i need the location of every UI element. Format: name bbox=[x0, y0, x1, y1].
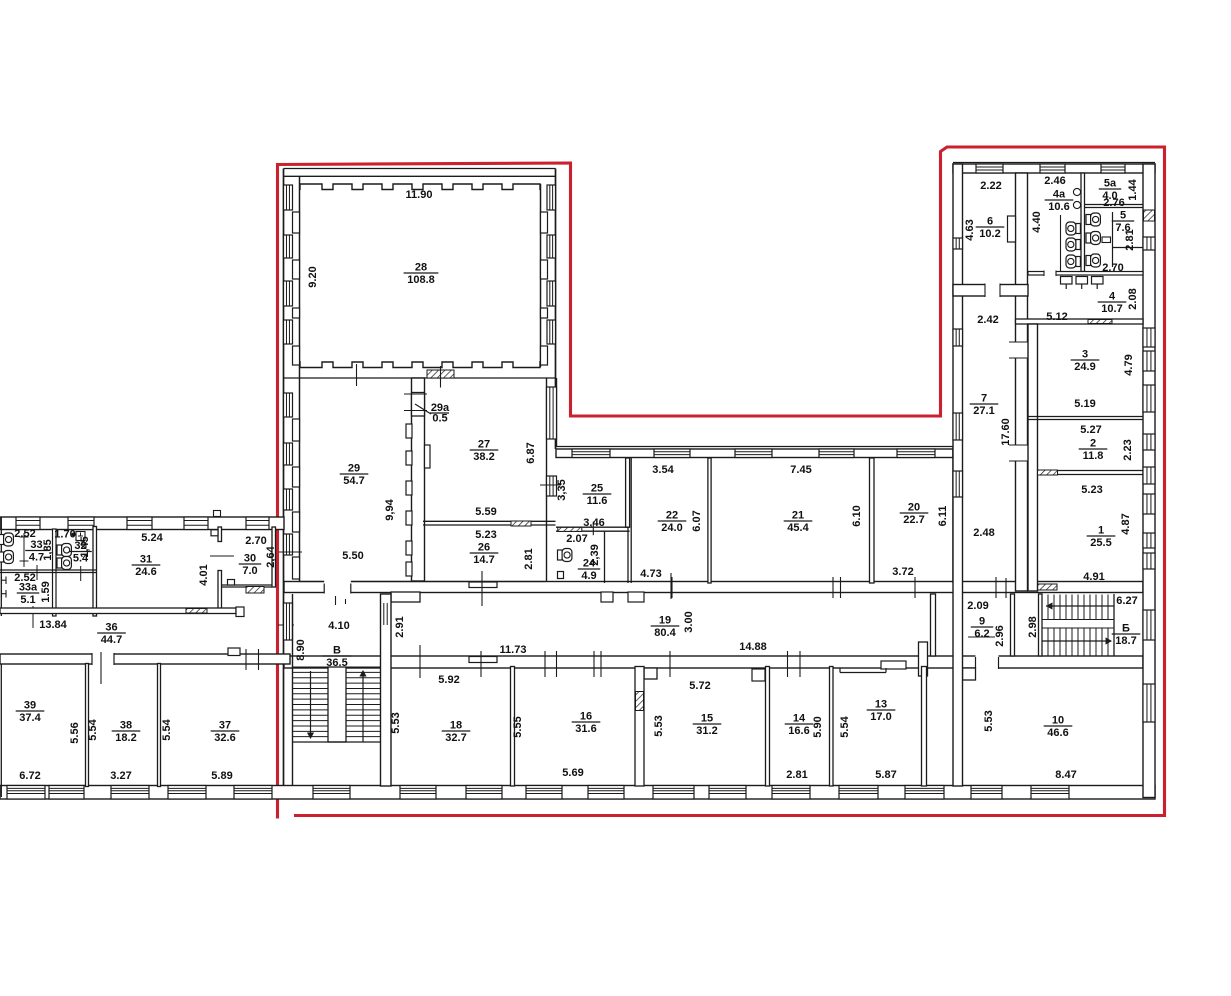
svg-text:3.27: 3.27 bbox=[110, 770, 131, 782]
svg-text:5.27: 5.27 bbox=[1080, 424, 1101, 436]
svg-text:5.72: 5.72 bbox=[689, 680, 710, 692]
svg-text:5.23: 5.23 bbox=[1081, 484, 1102, 496]
svg-text:4.40: 4.40 bbox=[1031, 211, 1043, 232]
svg-text:1,85: 1,85 bbox=[42, 539, 54, 560]
svg-text:6.72: 6.72 bbox=[19, 770, 40, 782]
svg-text:5.56: 5.56 bbox=[69, 722, 81, 743]
svg-text:2.76: 2.76 bbox=[1103, 197, 1124, 209]
svg-text:26: 26 bbox=[478, 542, 490, 554]
svg-text:2.07: 2.07 bbox=[566, 533, 587, 545]
svg-text:5.19: 5.19 bbox=[1074, 398, 1095, 410]
svg-text:10.6: 10.6 bbox=[1048, 201, 1069, 213]
svg-text:6.2: 6.2 bbox=[974, 628, 989, 640]
svg-text:6.87: 6.87 bbox=[525, 442, 537, 463]
svg-text:4.79: 4.79 bbox=[1123, 354, 1135, 375]
svg-text:2.70: 2.70 bbox=[1102, 262, 1123, 274]
svg-text:5.92: 5.92 bbox=[438, 674, 459, 686]
svg-text:13: 13 bbox=[875, 699, 887, 711]
svg-text:7.45: 7.45 bbox=[790, 464, 811, 476]
svg-text:6.07: 6.07 bbox=[691, 510, 703, 531]
svg-text:39: 39 bbox=[24, 700, 36, 712]
svg-text:14.7: 14.7 bbox=[473, 554, 494, 566]
svg-text:21: 21 bbox=[792, 510, 804, 522]
svg-text:0.5: 0.5 bbox=[432, 413, 447, 425]
svg-text:8.47: 8.47 bbox=[1055, 769, 1076, 781]
svg-text:10: 10 bbox=[1052, 715, 1064, 727]
svg-text:1.44: 1.44 bbox=[1127, 178, 1139, 200]
svg-text:5.90: 5.90 bbox=[812, 716, 824, 737]
svg-text:2: 2 bbox=[1090, 438, 1096, 450]
svg-text:4.91: 4.91 bbox=[1083, 571, 1104, 583]
svg-text:5.69: 5.69 bbox=[562, 767, 583, 779]
svg-text:2.09: 2.09 bbox=[967, 600, 988, 612]
svg-text:16.6: 16.6 bbox=[788, 725, 809, 737]
svg-text:2,64: 2,64 bbox=[265, 545, 277, 567]
svg-text:5.54: 5.54 bbox=[87, 718, 99, 740]
svg-text:31.6: 31.6 bbox=[575, 723, 596, 735]
svg-text:28: 28 bbox=[415, 262, 427, 274]
svg-text:5: 5 bbox=[1120, 210, 1126, 222]
svg-text:24.9: 24.9 bbox=[1074, 361, 1095, 373]
svg-text:31.2: 31.2 bbox=[696, 725, 717, 737]
svg-text:5.54: 5.54 bbox=[839, 715, 851, 737]
svg-text:108.8: 108.8 bbox=[407, 274, 435, 286]
svg-text:11.8: 11.8 bbox=[1083, 450, 1104, 462]
svg-text:3.72: 3.72 bbox=[892, 566, 913, 578]
svg-text:36: 36 bbox=[105, 622, 117, 634]
svg-text:5.50: 5.50 bbox=[342, 550, 363, 562]
svg-text:80.4: 80.4 bbox=[654, 627, 676, 639]
svg-text:11.73: 11.73 bbox=[500, 644, 527, 656]
svg-text:1.59: 1.59 bbox=[40, 581, 52, 602]
svg-text:2.70: 2.70 bbox=[245, 535, 266, 547]
svg-text:5.89: 5.89 bbox=[211, 770, 232, 782]
svg-text:16: 16 bbox=[580, 711, 592, 723]
svg-text:7: 7 bbox=[981, 393, 987, 405]
svg-text:45.4: 45.4 bbox=[787, 522, 809, 534]
svg-text:2.23: 2.23 bbox=[1122, 439, 1134, 460]
svg-text:6: 6 bbox=[987, 216, 993, 228]
svg-text:11.90: 11.90 bbox=[406, 189, 433, 201]
svg-text:3: 3 bbox=[1082, 349, 1088, 361]
svg-text:2.42: 2.42 bbox=[977, 314, 998, 326]
svg-text:11.6: 11.6 bbox=[587, 495, 608, 507]
svg-text:31: 31 bbox=[140, 554, 152, 566]
svg-text:3.54: 3.54 bbox=[652, 464, 674, 476]
svg-text:7.0: 7.0 bbox=[242, 565, 257, 577]
svg-text:18.2: 18.2 bbox=[115, 732, 136, 744]
svg-text:27: 27 bbox=[478, 439, 490, 451]
svg-text:18.7: 18.7 bbox=[1115, 635, 1136, 647]
svg-text:38.2: 38.2 bbox=[473, 451, 494, 463]
svg-text:14.88: 14.88 bbox=[739, 641, 767, 653]
svg-text:29: 29 bbox=[348, 463, 360, 475]
svg-text:17.0: 17.0 bbox=[870, 711, 891, 723]
svg-text:1,45: 1,45 bbox=[79, 536, 91, 557]
svg-text:24.0: 24.0 bbox=[661, 522, 682, 534]
svg-text:5.24: 5.24 bbox=[141, 532, 163, 544]
svg-text:5а: 5а bbox=[1104, 178, 1117, 190]
svg-text:4.73: 4.73 bbox=[640, 568, 661, 580]
svg-text:2,39: 2,39 bbox=[589, 544, 601, 565]
svg-text:9,94: 9,94 bbox=[384, 498, 396, 520]
svg-text:9: 9 bbox=[979, 616, 985, 628]
svg-text:4.01: 4.01 bbox=[198, 564, 210, 585]
svg-text:2.46: 2.46 bbox=[1044, 175, 1065, 187]
svg-text:2.52: 2.52 bbox=[14, 572, 35, 584]
svg-text:3,46: 3,46 bbox=[583, 517, 604, 529]
svg-text:24.6: 24.6 bbox=[135, 566, 156, 578]
svg-text:18: 18 bbox=[450, 720, 462, 732]
svg-text:14: 14 bbox=[793, 713, 806, 725]
svg-text:2.52: 2.52 bbox=[14, 528, 35, 540]
svg-text:1.70: 1.70 bbox=[54, 529, 75, 541]
svg-text:5.55: 5.55 bbox=[512, 716, 524, 737]
svg-text:2.96: 2.96 bbox=[994, 625, 1006, 646]
svg-text:4.9: 4.9 bbox=[581, 570, 596, 582]
svg-text:5.23: 5.23 bbox=[475, 529, 496, 541]
svg-text:2.81: 2.81 bbox=[1124, 229, 1136, 250]
svg-text:Б: Б bbox=[1122, 623, 1130, 635]
svg-text:5.87: 5.87 bbox=[875, 769, 896, 781]
svg-text:38: 38 bbox=[120, 720, 132, 732]
svg-text:17.60: 17.60 bbox=[1000, 418, 1012, 446]
svg-text:4.87: 4.87 bbox=[1120, 513, 1132, 534]
svg-text:2.98: 2.98 bbox=[1027, 616, 1039, 637]
svg-text:2.81: 2.81 bbox=[523, 548, 535, 569]
svg-text:8.90: 8.90 bbox=[295, 639, 307, 660]
svg-text:1: 1 bbox=[1098, 525, 1104, 537]
svg-text:3,35: 3,35 bbox=[556, 479, 568, 500]
svg-text:6.11: 6.11 bbox=[937, 506, 949, 527]
svg-text:5.53: 5.53 bbox=[390, 712, 402, 733]
svg-text:10.2: 10.2 bbox=[979, 228, 1000, 240]
svg-text:13.84: 13.84 bbox=[39, 619, 67, 631]
svg-text:2.91: 2.91 bbox=[394, 616, 406, 637]
svg-text:25.5: 25.5 bbox=[1090, 537, 1111, 549]
svg-text:19: 19 bbox=[659, 615, 671, 627]
svg-text:36.5: 36.5 bbox=[326, 657, 347, 669]
svg-text:4.10: 4.10 bbox=[328, 620, 349, 632]
svg-text:5.59: 5.59 bbox=[475, 506, 496, 518]
svg-text:25: 25 bbox=[591, 483, 603, 495]
svg-text:5.12: 5.12 bbox=[1046, 311, 1067, 323]
svg-text:15: 15 bbox=[701, 713, 713, 725]
svg-text:22.7: 22.7 bbox=[903, 514, 924, 526]
svg-text:30: 30 bbox=[244, 553, 256, 565]
svg-text:2.48: 2.48 bbox=[973, 527, 994, 539]
svg-text:3.00: 3.00 bbox=[683, 611, 695, 632]
svg-text:54.7: 54.7 bbox=[343, 475, 364, 487]
svg-text:20: 20 bbox=[908, 502, 920, 514]
svg-text:32.7: 32.7 bbox=[445, 732, 466, 744]
svg-text:44.7: 44.7 bbox=[101, 634, 122, 646]
svg-text:5.53: 5.53 bbox=[653, 715, 665, 736]
svg-text:В: В bbox=[333, 645, 341, 657]
svg-text:5.53: 5.53 bbox=[983, 710, 995, 731]
svg-text:2.22: 2.22 bbox=[980, 180, 1001, 192]
svg-text:4а: 4а bbox=[1053, 189, 1066, 201]
svg-text:32.6: 32.6 bbox=[214, 732, 235, 744]
svg-text:6.10: 6.10 bbox=[851, 505, 863, 526]
svg-text:27.1: 27.1 bbox=[973, 405, 994, 417]
svg-text:2.81: 2.81 bbox=[786, 769, 807, 781]
svg-text:10.7: 10.7 bbox=[1101, 303, 1122, 315]
svg-text:4.63: 4.63 bbox=[964, 219, 976, 240]
svg-text:4: 4 bbox=[1109, 291, 1116, 303]
svg-text:37.4: 37.4 bbox=[19, 712, 41, 724]
svg-text:2.08: 2.08 bbox=[1127, 288, 1139, 309]
svg-text:5.1: 5.1 bbox=[20, 594, 35, 606]
svg-text:37: 37 bbox=[219, 720, 231, 732]
svg-text:46.6: 46.6 bbox=[1047, 727, 1068, 739]
svg-text:9.20: 9.20 bbox=[307, 266, 319, 287]
svg-text:33: 33 bbox=[30, 539, 42, 551]
svg-text:6.27: 6.27 bbox=[1116, 595, 1137, 607]
svg-text:22: 22 bbox=[666, 510, 678, 522]
svg-text:5.54: 5.54 bbox=[161, 718, 173, 740]
